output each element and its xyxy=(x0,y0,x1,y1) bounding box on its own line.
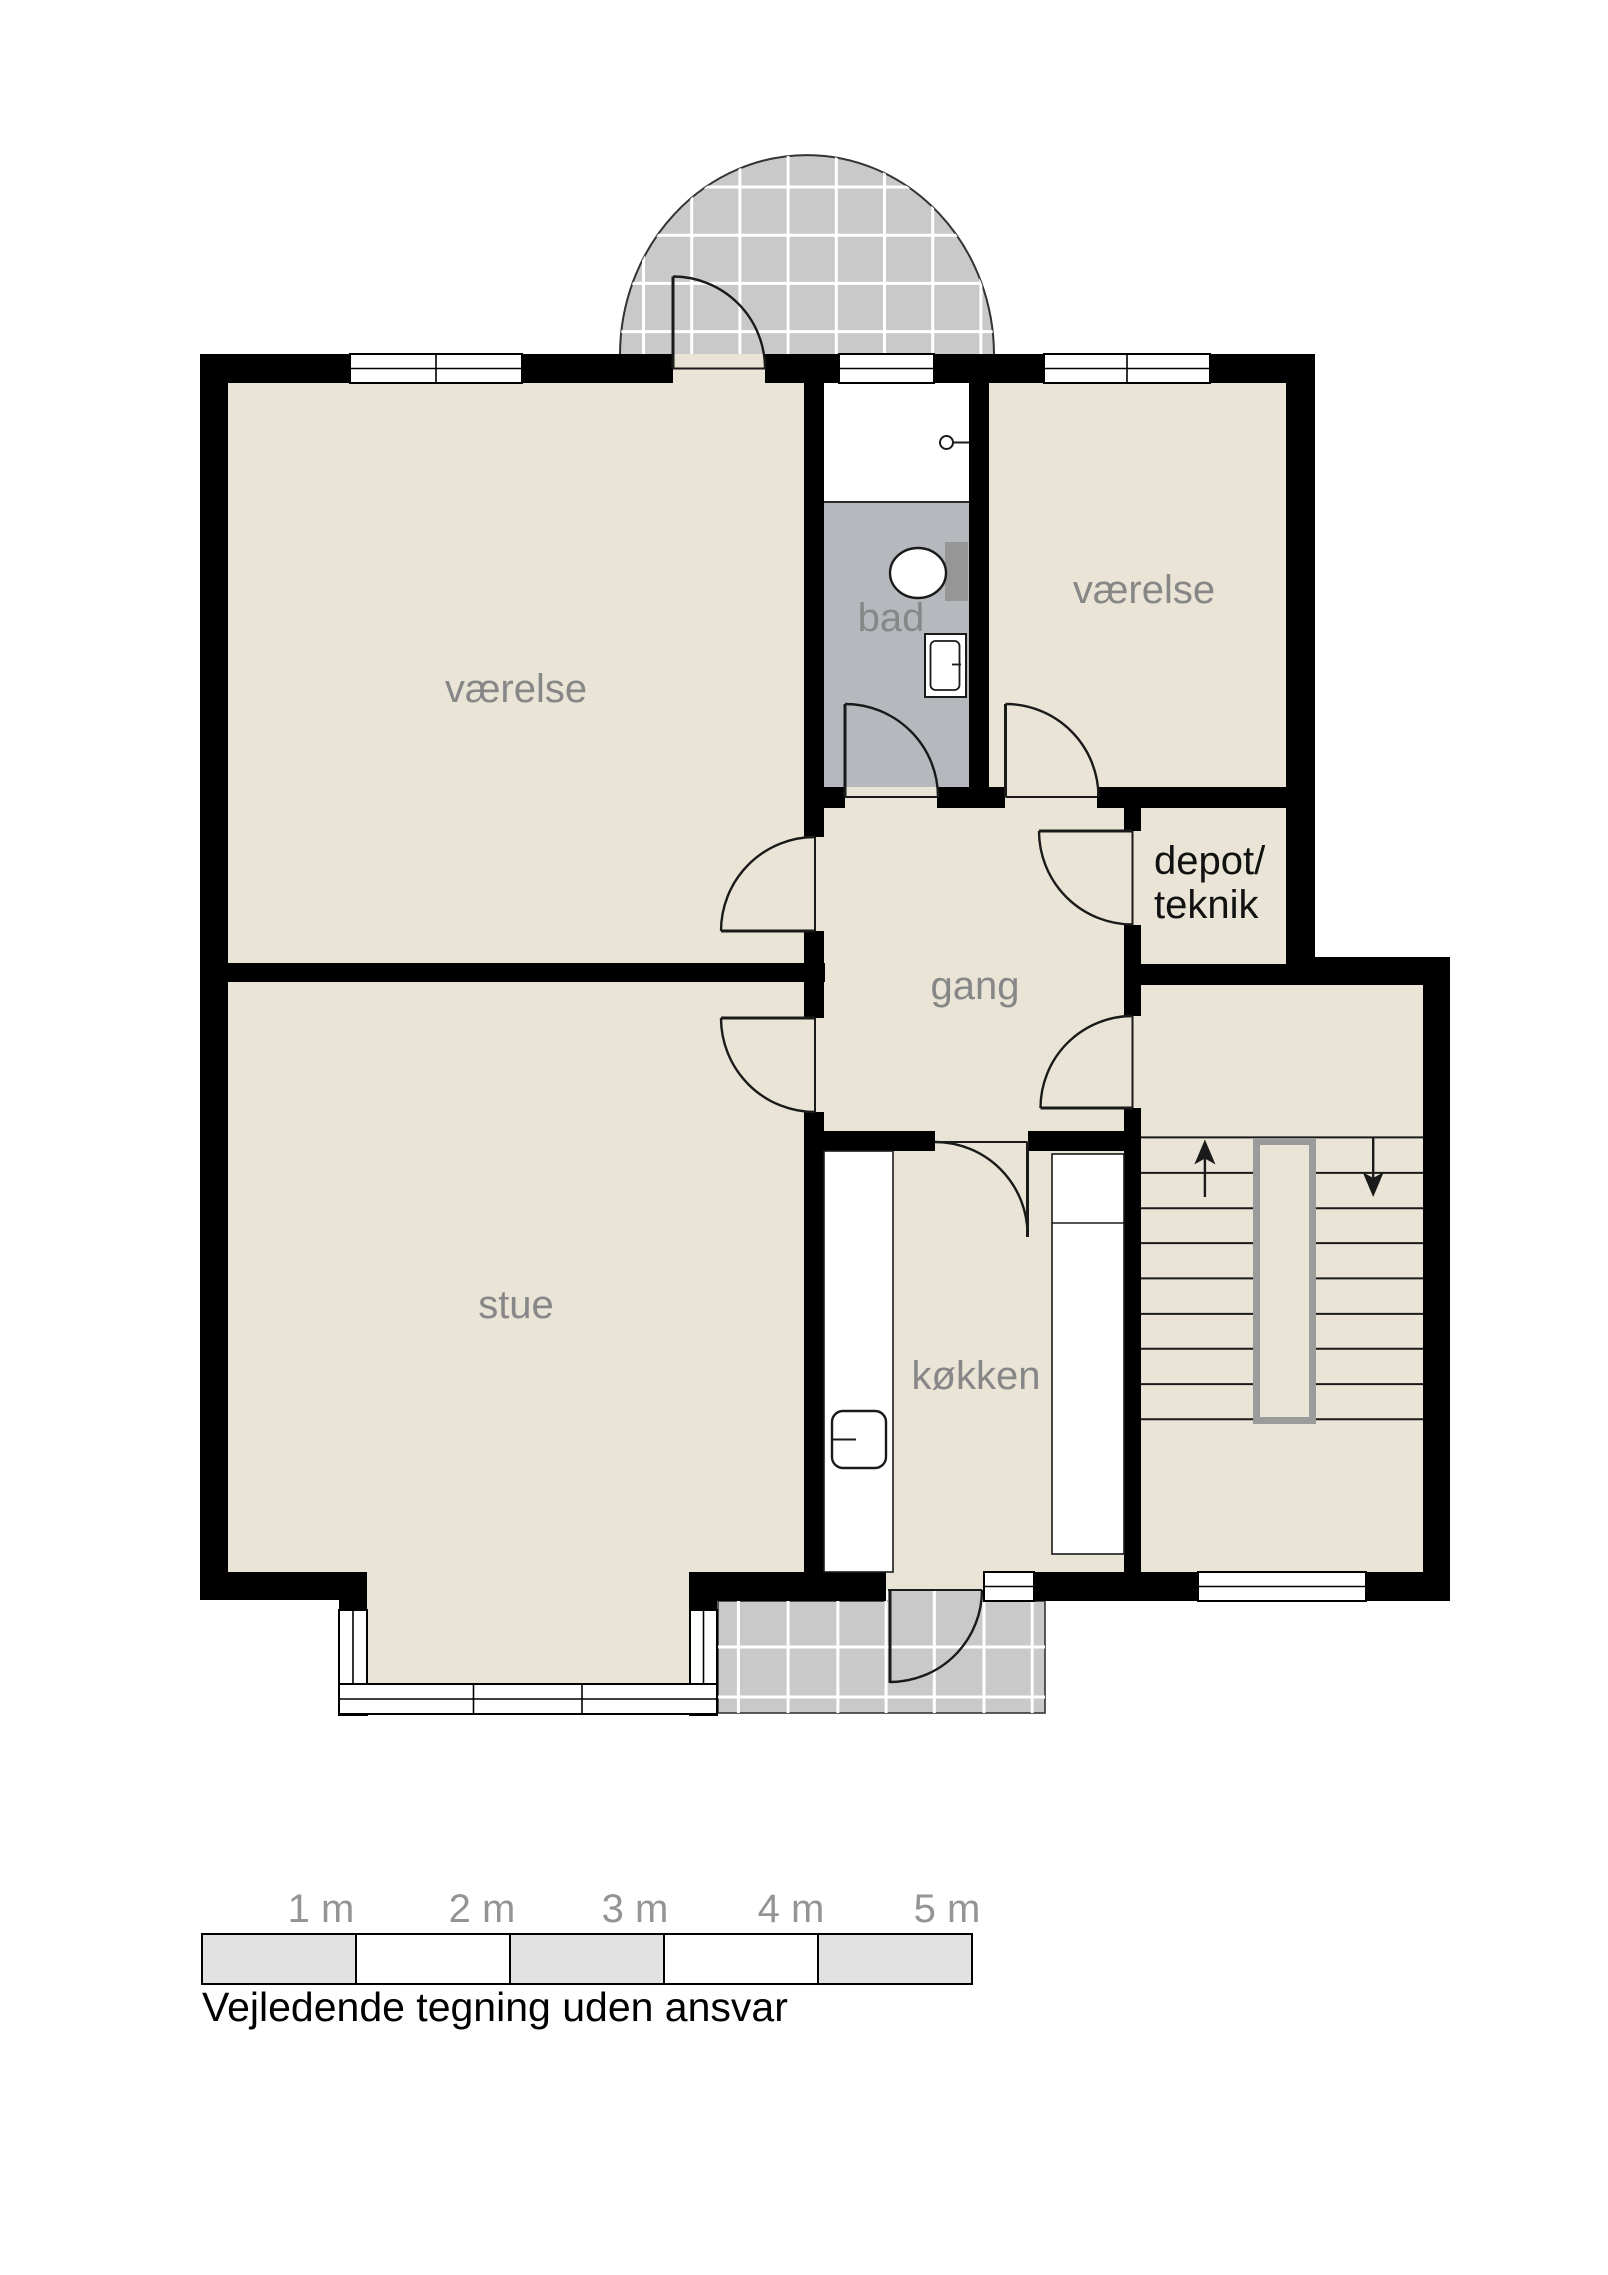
svg-text:2 m: 2 m xyxy=(449,1887,516,1931)
svg-text:1 m: 1 m xyxy=(288,1887,355,1931)
svg-text:bad: bad xyxy=(858,596,925,640)
svg-text:værelse: værelse xyxy=(1073,568,1215,612)
svg-text:Vejledende tegning uden ansvar: Vejledende tegning uden ansvar xyxy=(202,1984,788,2030)
svg-text:depot/: depot/ xyxy=(1154,839,1266,883)
svg-text:3 m: 3 m xyxy=(602,1887,669,1931)
svg-text:5 m: 5 m xyxy=(914,1887,981,1931)
svg-text:køkken: køkken xyxy=(912,1354,1041,1398)
svg-text:gang: gang xyxy=(931,964,1020,1008)
svg-text:4 m: 4 m xyxy=(758,1887,825,1931)
svg-text:teknik: teknik xyxy=(1154,883,1259,927)
svg-text:stue: stue xyxy=(478,1283,554,1327)
svg-text:værelse: værelse xyxy=(445,667,587,711)
